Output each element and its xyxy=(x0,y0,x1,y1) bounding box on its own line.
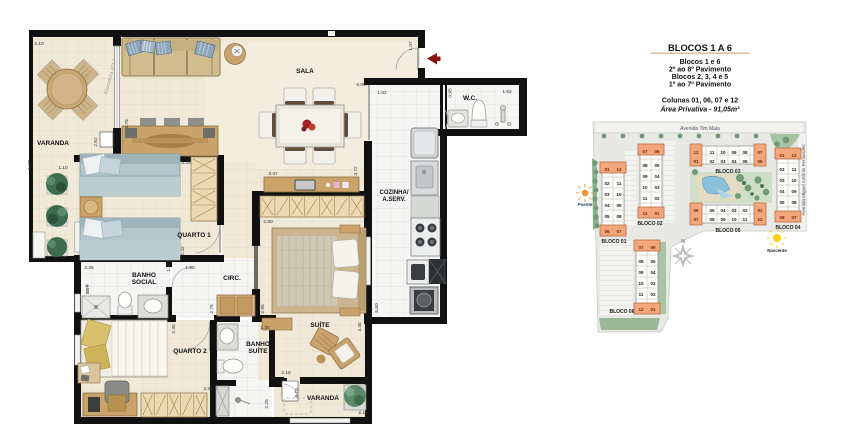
svg-text:3.32: 3.32 xyxy=(181,160,191,166)
svg-text:07: 07 xyxy=(616,229,622,234)
svg-text:01: 01 xyxy=(604,167,610,172)
svg-text:2º ao 8º Pavimento: 2º ao 8º Pavimento xyxy=(669,67,731,74)
svg-text:Avenida Miguel Antônio Fernand: Avenida Miguel Antônio Fernandes xyxy=(801,144,806,216)
svg-text:SALA: SALA xyxy=(296,68,314,75)
svg-text:05: 05 xyxy=(654,163,660,168)
svg-text:07: 07 xyxy=(757,150,763,155)
svg-text:BANHO: BANHO xyxy=(246,341,270,348)
svg-text:Nascente: Nascente xyxy=(767,248,787,253)
svg-text:11: 11 xyxy=(792,167,797,172)
svg-text:06: 06 xyxy=(604,229,610,234)
svg-text:2.30: 2.30 xyxy=(171,324,177,334)
svg-text:08: 08 xyxy=(642,163,648,168)
svg-text:BANHO: BANHO xyxy=(132,272,156,279)
svg-text:05: 05 xyxy=(650,259,656,264)
svg-text:12: 12 xyxy=(616,167,622,172)
svg-text:Blocos 2, 3, 4 e 5: Blocos 2, 3, 4 e 5 xyxy=(672,74,729,81)
svg-text:10: 10 xyxy=(642,185,648,190)
svg-text:1.10: 1.10 xyxy=(58,165,68,171)
svg-text:2.10: 2.10 xyxy=(34,41,44,47)
svg-text:04: 04 xyxy=(654,174,660,179)
svg-text:BLOCO 03: BLOCO 03 xyxy=(715,169,740,175)
svg-text:02: 02 xyxy=(654,196,660,201)
svg-text:03: 03 xyxy=(779,178,785,183)
svg-text:04: 04 xyxy=(779,189,785,194)
svg-text:2.62: 2.62 xyxy=(93,137,99,147)
svg-text:2.15: 2.15 xyxy=(281,370,291,376)
svg-text:11: 11 xyxy=(639,292,644,297)
svg-text:12: 12 xyxy=(693,150,699,155)
svg-text:01: 01 xyxy=(757,208,763,213)
svg-text:04: 04 xyxy=(604,203,610,208)
svg-text:07: 07 xyxy=(642,149,648,154)
svg-text:2.25: 2.25 xyxy=(84,265,94,271)
svg-text:0.70: 0.70 xyxy=(294,388,300,398)
svg-text:08: 08 xyxy=(709,217,715,222)
svg-text:09: 09 xyxy=(616,203,622,208)
svg-text:11: 11 xyxy=(643,196,648,201)
svg-text:06: 06 xyxy=(779,215,785,220)
svg-text:01: 01 xyxy=(650,307,656,312)
svg-text:0.95: 0.95 xyxy=(448,88,454,98)
svg-text:10: 10 xyxy=(638,281,644,286)
svg-text:11: 11 xyxy=(710,150,715,155)
svg-text:06: 06 xyxy=(654,149,660,154)
svg-text:6.05: 6.05 xyxy=(356,82,366,88)
svg-text:5.27: 5.27 xyxy=(27,160,33,170)
svg-text:05: 05 xyxy=(604,214,610,219)
svg-text:QUARTO 2: QUARTO 2 xyxy=(173,348,207,355)
svg-text:03: 03 xyxy=(654,185,660,190)
svg-text:01: 01 xyxy=(654,211,660,216)
svg-text:1.62: 1.62 xyxy=(377,90,387,96)
svg-text:BLOCO 04: BLOCO 04 xyxy=(775,225,800,231)
svg-text:BLOCO 05: BLOCO 05 xyxy=(715,228,740,234)
svg-text:09: 09 xyxy=(638,270,644,275)
svg-text:03: 03 xyxy=(731,208,737,213)
svg-text:10: 10 xyxy=(720,150,726,155)
svg-text:SOCIAL: SOCIAL xyxy=(132,279,157,286)
svg-text:COZINHA/: COZINHA/ xyxy=(380,190,409,196)
svg-text:07: 07 xyxy=(693,217,699,222)
svg-text:SUÍTE: SUÍTE xyxy=(310,320,330,329)
svg-text:08: 08 xyxy=(742,150,748,155)
svg-text:1.07: 1.07 xyxy=(408,41,414,51)
svg-text:2.60: 2.60 xyxy=(263,219,273,225)
svg-text:3.30: 3.30 xyxy=(203,386,213,392)
svg-text:4.45: 4.45 xyxy=(357,322,363,332)
svg-text:2.25: 2.25 xyxy=(264,399,270,409)
svg-text:09: 09 xyxy=(720,217,726,222)
svg-text:VARANDA: VARANDA xyxy=(307,395,339,402)
svg-text:09: 09 xyxy=(731,150,737,155)
svg-text:03: 03 xyxy=(650,281,656,286)
svg-text:10: 10 xyxy=(791,178,797,183)
svg-text:12: 12 xyxy=(642,211,648,216)
svg-text:2.10: 2.10 xyxy=(358,410,368,416)
svg-text:03: 03 xyxy=(604,192,610,197)
svg-text:SUÍTE: SUÍTE xyxy=(248,346,268,355)
svg-text:11: 11 xyxy=(617,181,622,186)
svg-text:05: 05 xyxy=(709,208,715,213)
svg-text:02: 02 xyxy=(709,159,715,164)
svg-text:08: 08 xyxy=(791,200,797,205)
svg-text:Blocos 1 e 6: Blocos 1 e 6 xyxy=(680,59,721,66)
svg-text:CIRC.: CIRC. xyxy=(223,275,241,282)
svg-text:12: 12 xyxy=(791,153,797,158)
svg-text:12: 12 xyxy=(638,307,644,312)
svg-text:02: 02 xyxy=(650,292,656,297)
svg-text:06: 06 xyxy=(650,245,656,250)
svg-text:1.62: 1.62 xyxy=(502,89,512,95)
svg-text:02: 02 xyxy=(604,181,610,186)
svg-text:01: 01 xyxy=(693,159,699,164)
svg-text:1.30: 1.30 xyxy=(260,325,270,331)
svg-text:QUARTO 1: QUARTO 1 xyxy=(177,232,211,239)
svg-text:Área Privativa - 91,05m²: Área Privativa - 91,05m² xyxy=(660,105,741,114)
svg-text:Avenida Tim Maia: Avenida Tim Maia xyxy=(680,126,720,132)
svg-text:02: 02 xyxy=(779,167,785,172)
svg-text:09: 09 xyxy=(642,174,648,179)
svg-text:3.47: 3.47 xyxy=(268,171,278,177)
svg-text:03: 03 xyxy=(720,159,726,164)
svg-text:5.60: 5.60 xyxy=(374,303,380,313)
svg-text:06: 06 xyxy=(757,159,763,164)
svg-text:Colunas 01, 06, 07 e 12: Colunas 01, 06, 07 e 12 xyxy=(662,98,738,105)
svg-text:1.30: 1.30 xyxy=(166,262,172,272)
svg-text:11: 11 xyxy=(743,217,748,222)
svg-text:3.72: 3.72 xyxy=(353,166,359,176)
svg-text:05: 05 xyxy=(779,200,785,205)
svg-text:05: 05 xyxy=(742,159,748,164)
svg-text:Poente: Poente xyxy=(578,202,593,207)
svg-text:10: 10 xyxy=(616,192,622,197)
svg-text:12: 12 xyxy=(757,217,763,222)
svg-text:N: N xyxy=(681,239,685,245)
svg-text:A.SERV.: A.SERV. xyxy=(382,197,406,203)
svg-text:02: 02 xyxy=(742,208,748,213)
svg-text:07: 07 xyxy=(638,245,644,250)
svg-text:1.90: 1.90 xyxy=(185,265,195,271)
svg-text:06: 06 xyxy=(693,208,699,213)
svg-text:04: 04 xyxy=(731,159,737,164)
svg-text:BLOCO 06: BLOCO 06 xyxy=(609,309,634,315)
svg-text:W.C.: W.C. xyxy=(463,95,477,102)
svg-text:01: 01 xyxy=(779,153,785,158)
svg-text:BLOCO 01: BLOCO 01 xyxy=(601,239,626,245)
svg-text:04: 04 xyxy=(650,270,656,275)
svg-text:VARANDA: VARANDA xyxy=(37,140,69,147)
svg-text:1º ao 7º Pavimento: 1º ao 7º Pavimento xyxy=(669,82,731,89)
svg-text:2.75: 2.75 xyxy=(209,304,215,314)
svg-text:BLOCOS 1 A 6: BLOCOS 1 A 6 xyxy=(668,43,732,53)
svg-text:09: 09 xyxy=(791,189,797,194)
svg-text:07: 07 xyxy=(791,215,797,220)
svg-text:10: 10 xyxy=(731,217,737,222)
svg-text:08: 08 xyxy=(616,214,622,219)
svg-text:2.95: 2.95 xyxy=(260,304,266,314)
svg-text:BLOCO 02: BLOCO 02 xyxy=(637,221,662,227)
svg-text:2.79: 2.79 xyxy=(124,119,130,129)
svg-text:08: 08 xyxy=(638,259,644,264)
svg-text:04: 04 xyxy=(720,208,726,213)
svg-text:2.42: 2.42 xyxy=(180,246,186,256)
